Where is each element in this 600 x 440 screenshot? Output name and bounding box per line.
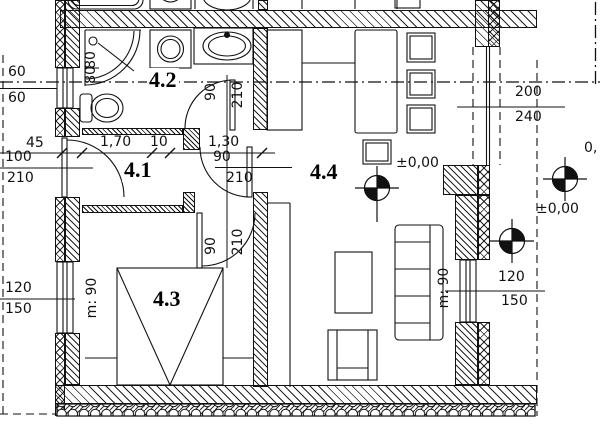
dim-window-60-bottom: 60 (8, 90, 26, 106)
dim-bath-door-height: 210 (230, 80, 246, 110)
coffee-table-icon (335, 252, 372, 313)
benchmark-icon-terrace (490, 219, 534, 263)
parapet-label-right: m: 90 (436, 270, 452, 306)
room-label-corridor: 4.1 (122, 158, 154, 182)
level-label-right: ±0,00 (536, 201, 579, 217)
dim-1-70: 1,70 (100, 134, 131, 150)
dim-shower-80b: 80 (83, 60, 99, 90)
level-label-edge: 0, (584, 140, 597, 156)
dim-balcony-200: 200 (515, 84, 542, 100)
dining-chairs (363, 33, 435, 164)
toilet-icon (80, 94, 123, 122)
foundation-strip (57, 404, 535, 416)
upper-unit-fixtures (68, 0, 420, 10)
window-left-lower (57, 262, 73, 333)
room-label-bedroom: 4.3 (151, 287, 183, 311)
floor-plan: 60 60 45 100 210 120 150 1,70 10 1,30 90… (0, 0, 600, 440)
dim-window-120-left: 120 (5, 280, 32, 296)
dim-1-30: 1,30 (208, 134, 239, 150)
dim-window-120-right: 120 (498, 269, 525, 285)
dim-bed-door-width: 90 (203, 231, 219, 261)
kitchen-counter (267, 30, 355, 130)
room-label-bathroom: 4.2 (147, 68, 179, 92)
dim-entry-width: 100 (5, 149, 32, 165)
window-left-upper (57, 68, 73, 108)
washbasin-icon (194, 28, 253, 64)
washing-machine-icon (150, 30, 191, 68)
wardrobe-living (268, 203, 290, 387)
dim-bath-door-width: 90 (203, 77, 219, 107)
benchmark-icon-main (355, 166, 399, 222)
dim-balcony-240: 240 (515, 109, 542, 125)
dim-window-60-top: 60 (8, 64, 26, 80)
dim-hall-door-height: 210 (226, 170, 253, 186)
balcony-door-glazing (487, 47, 490, 165)
dim-entry-height: 210 (7, 170, 34, 186)
parapet-label-left: m: 90 (84, 280, 100, 316)
dim-window-150-left: 150 (5, 301, 32, 317)
dim-10: 10 (150, 134, 168, 150)
dim-window-150-right: 150 (501, 293, 528, 309)
dim-bed-door-height: 210 (230, 227, 246, 257)
dimension-lines (0, 68, 565, 299)
level-label-main: ±0,00 (396, 155, 439, 171)
room-label-living: 4.4 (308, 160, 340, 184)
dim-hall-door-width: 90 (213, 149, 231, 165)
armchair-icon (328, 330, 377, 380)
benchmark-icon-right (543, 157, 587, 201)
